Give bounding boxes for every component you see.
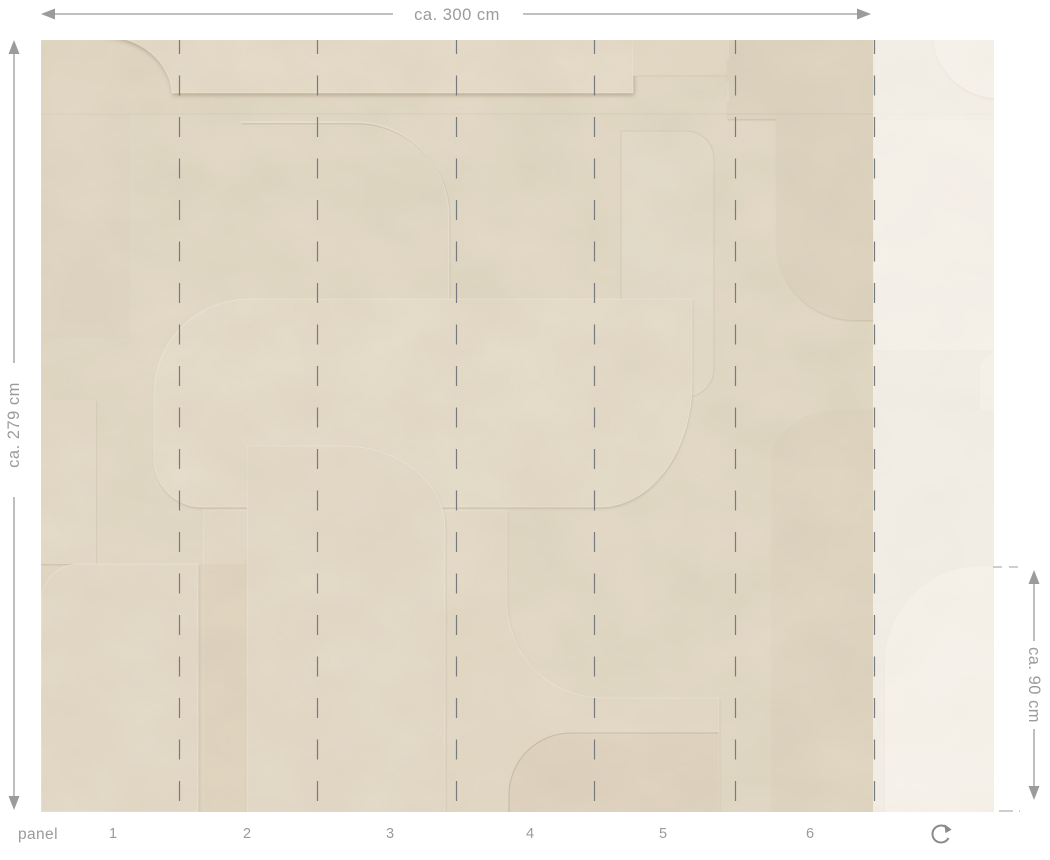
svg-text:4: 4 bbox=[526, 826, 534, 842]
svg-text:6: 6 bbox=[806, 826, 814, 842]
svg-text:panel: panel bbox=[18, 826, 58, 843]
svg-text:ca. 90 cm: ca. 90 cm bbox=[1025, 647, 1043, 723]
svg-text:2: 2 bbox=[243, 826, 251, 842]
svg-text:ca. 279 cm: ca. 279 cm bbox=[5, 382, 23, 468]
svg-text:1: 1 bbox=[109, 826, 117, 842]
svg-text:3: 3 bbox=[386, 826, 394, 842]
svg-text:ca. 300 cm: ca. 300 cm bbox=[414, 6, 500, 24]
svg-text:5: 5 bbox=[659, 826, 667, 842]
